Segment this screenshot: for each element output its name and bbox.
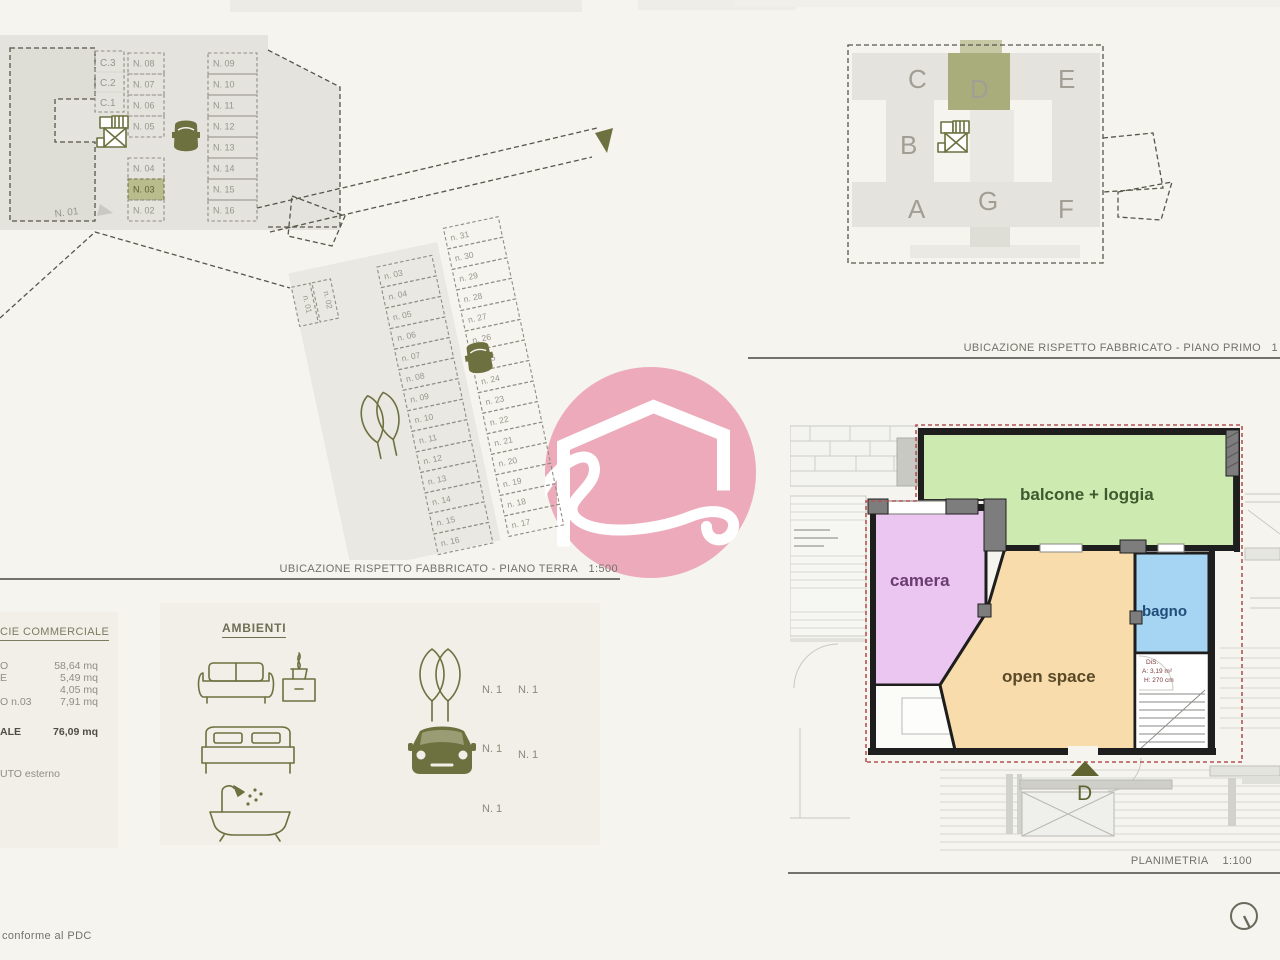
count-label: N. 1 [518, 749, 538, 761]
wall [1209, 548, 1215, 755]
pillar [984, 499, 1006, 551]
parking-stall-label: N. 08 [133, 59, 155, 69]
storage-label: C.3 [100, 58, 116, 69]
wall [918, 428, 1240, 435]
surface-total-value: 76,09 mq [53, 726, 98, 738]
building-mass [970, 110, 1014, 184]
drawing-sheet: C.3 C.2 C.1 N. 08N. 07N. 06N. 05 N. 04N.… [0, 0, 1280, 960]
sliding-door-opening [1158, 544, 1184, 552]
unit-label: E [1058, 64, 1075, 94]
unit-label: G [978, 186, 998, 216]
car-front-icon [406, 721, 478, 783]
surface-label: O n.03 [0, 696, 32, 708]
bathtub-icon [200, 778, 300, 842]
sofa-icon [195, 651, 325, 719]
stair-note: A: 3,19 m² [1142, 668, 1173, 675]
surface-row: 4,05 mq [0, 684, 98, 696]
parking-stall-label: n. 27 [467, 311, 488, 325]
unit-label: A [908, 194, 926, 224]
car-icon [463, 340, 495, 375]
context-bottom-deck [940, 758, 1280, 850]
entrance-arrow-icon [1071, 761, 1099, 776]
parking-stall-label: N. 16 [213, 206, 235, 216]
parking-stall-label: n. 23 [484, 393, 505, 407]
caption-piano-terra: UBICAZIONE RISPETTO FABBRICATO - PIANO T… [280, 563, 618, 575]
parking-stall-label: N. 07 [133, 80, 155, 90]
unit-d-highlight-upper [960, 40, 1002, 54]
bed-icon [198, 721, 298, 779]
unit-label-highlighted: D [970, 74, 989, 104]
surface-value: 5,49 mq [60, 672, 98, 684]
wall [918, 428, 924, 504]
stair-note: H: 270 cm [1144, 677, 1174, 684]
count-label: N. 1 [482, 743, 502, 755]
room-label-camera: camera [890, 571, 950, 590]
surface-value: 7,91 mq [60, 696, 98, 708]
top-strip-decoration [735, 0, 1280, 7]
parking-stall-label: N. 14 [213, 164, 235, 174]
surface-label: O [0, 660, 8, 672]
caption-scale: 1 [1271, 342, 1278, 354]
parking-stall-label: N. 06 [133, 101, 155, 111]
context-brick-terrace [790, 426, 918, 486]
parking-stall-label: n. 28 [463, 291, 484, 305]
wall [868, 748, 1216, 755]
pillar [1120, 540, 1146, 553]
surface-value: 58,64 mq [54, 660, 98, 672]
building-mass [1052, 100, 1100, 184]
parking-stall-label: N. 10 [213, 80, 235, 90]
direction-arrow-icon [595, 128, 613, 153]
surface-note: UTO esterno [0, 768, 98, 780]
caption-rule [748, 357, 1280, 359]
parking-stall-label: n. 22 [489, 414, 510, 428]
room-label-balcone: balcone + loggia [1020, 485, 1154, 504]
surface-total-row: ALE76,09 mq [0, 726, 98, 738]
site-plan-ground-floor: C.3 C.2 C.1 N. 08N. 07N. 06N. 05 N. 04N.… [0, 0, 660, 560]
surface-row: O58,64 mq [0, 660, 98, 672]
parking-stall-label: N. 04 [133, 164, 155, 174]
ambienti-heading: AMBIENTI [222, 621, 286, 638]
parking-stall-label: N. 15 [213, 185, 235, 195]
north-indicator-icon [1222, 896, 1266, 940]
unit-label: B [900, 130, 917, 160]
surfaces-heading: CIE COMMERCIALE [0, 626, 109, 641]
tree-icon [405, 645, 475, 725]
parking-stall-label: n. 30 [454, 249, 475, 263]
pillar [978, 604, 991, 617]
entrance-opening [1068, 746, 1098, 757]
parking-stall-label: N. 03 [133, 185, 155, 195]
caption-rule [0, 578, 620, 580]
building-mass [970, 227, 1010, 247]
parking-stall-label: n. 18 [506, 496, 527, 510]
car-icon [172, 121, 200, 152]
count-label: N. 1 [482, 803, 502, 815]
stair-note: DiS. [1146, 659, 1158, 666]
unit-label: C [908, 64, 927, 94]
wall [870, 506, 876, 754]
caption-rule [788, 872, 1280, 874]
caption-scale: 1:500 [588, 563, 618, 575]
storage-label: C.2 [100, 78, 116, 89]
parking-stall-label: N. 02 [133, 206, 155, 216]
footer-note: conforme al PDC [2, 930, 92, 942]
count-label: N. 1 [482, 684, 502, 696]
parking-stall-label: n. 21 [493, 434, 514, 448]
parking-stall-label: n. 17 [511, 516, 532, 530]
parking-stall-label: N. 12 [213, 122, 235, 132]
pillar [1130, 611, 1142, 624]
entrance-label: D [1077, 782, 1092, 805]
outdoor-parking-lot: n. 03n. 04n. 05n. 06n. 07n. 08n. 09n. 10… [286, 217, 564, 560]
surface-row: O n.037,91 mq [0, 696, 98, 708]
ambienti-panel: AMBIENTI N. 1 N. 1 [160, 603, 600, 845]
parking-stall-label: N. 11 [213, 101, 234, 111]
planimetria-unit-d: balcone + loggia camera open space bagno… [790, 398, 1280, 868]
context-left-deck [790, 496, 866, 818]
surface-value: 4,05 mq [60, 684, 98, 696]
caption-text: UBICAZIONE RISPETTO FABBRICATO - PIANO T… [280, 563, 579, 575]
parking-stall-label: n. 19 [502, 475, 523, 489]
room-label-open-space: open space [1002, 667, 1096, 686]
parking-stall-label: N. 13 [213, 143, 235, 153]
surface-row: E5,49 mq [0, 672, 98, 684]
sliding-door-opening [1040, 544, 1082, 552]
driveway-dashed-line [0, 232, 290, 318]
parking-stall-label: N. 09 [213, 59, 235, 69]
elevator-stairs-icon [938, 121, 969, 152]
building-key-plan-first-floor: C D E B A G F [820, 20, 1240, 300]
storage-label: C.1 [100, 98, 116, 109]
parking-stall-label: n. 29 [458, 270, 479, 284]
unit-label: F [1058, 194, 1074, 224]
surface-label: E [0, 672, 7, 684]
building-outline [1118, 182, 1172, 220]
parking-stall-label: N. 05 [133, 122, 155, 132]
surfaces-panel: CIE COMMERCIALE O58,64 mq E5,49 mq 4,05 … [0, 612, 118, 848]
surface-total-label: ALE [0, 726, 21, 738]
building-outline [1103, 133, 1163, 192]
room-label-bagno: bagno [1142, 603, 1187, 620]
caption-piano-primo: UBICAZIONE RISPETTO FABBRICATO - PIANO P… [964, 342, 1278, 354]
parking-stall-label: n. 20 [498, 455, 519, 469]
caption-text: UBICAZIONE RISPETTO FABBRICATO - PIANO P… [964, 342, 1262, 354]
pillar [946, 499, 978, 514]
parking-stall-label: n. 31 [449, 229, 470, 243]
parking-stall-label: n. 24 [480, 373, 501, 387]
window [888, 501, 946, 514]
count-label: N. 1 [518, 684, 538, 696]
